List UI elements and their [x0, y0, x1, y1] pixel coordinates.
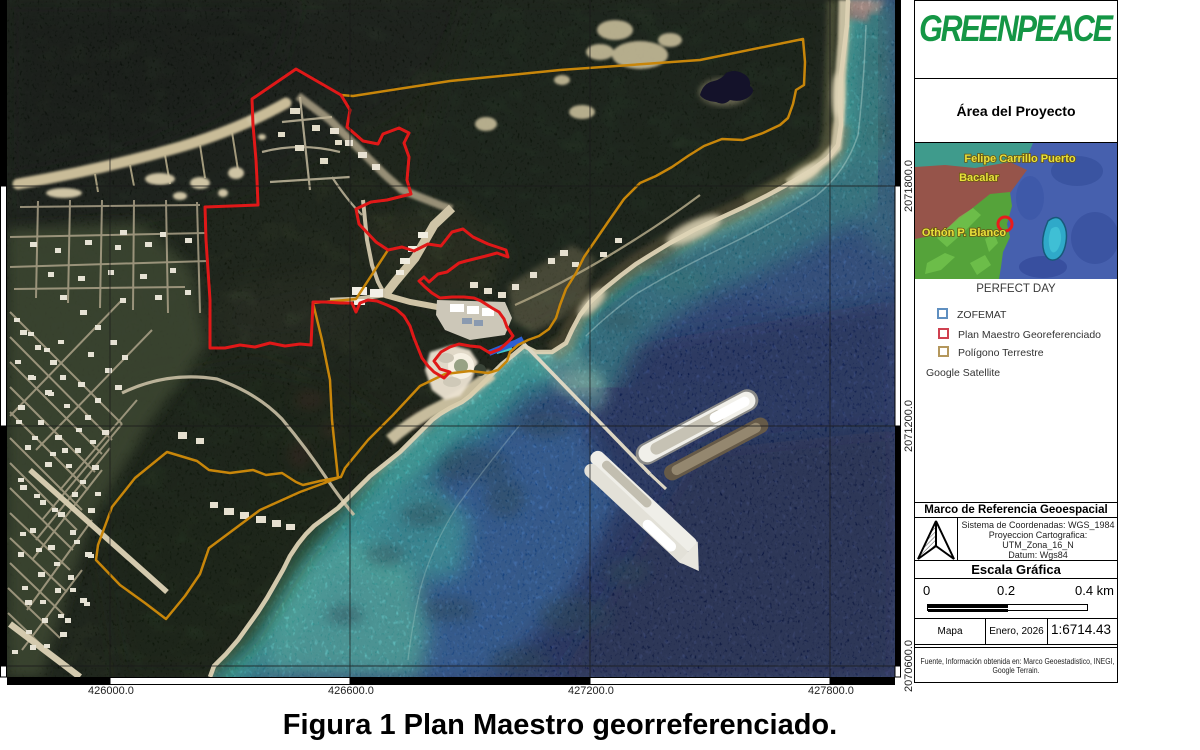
svg-text:Othón P. Blanco: Othón P. Blanco	[922, 227, 1006, 239]
svg-text:GREENPEACE: GREENPEACE	[919, 8, 1114, 50]
svg-text:Bacalar: Bacalar	[959, 172, 999, 184]
svg-text:Felipe Carrillo Puerto: Felipe Carrillo Puerto	[964, 153, 1076, 165]
